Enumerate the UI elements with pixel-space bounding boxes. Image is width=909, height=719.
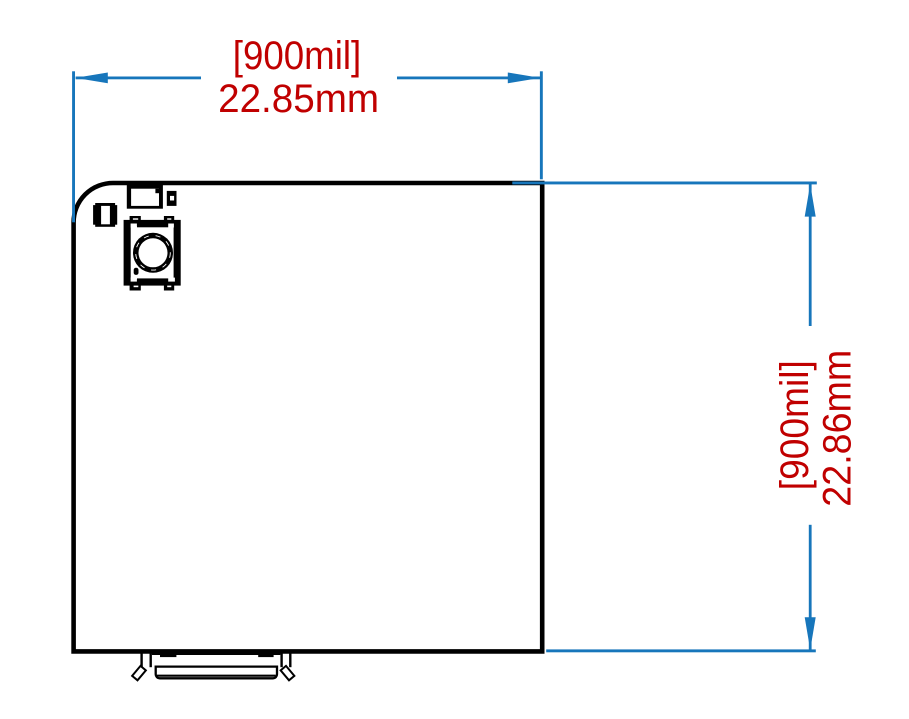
svg-text:[900mil]: [900mil] <box>233 34 362 78</box>
svg-text:22.85mm: 22.85mm <box>218 77 379 121</box>
svg-text:[900mil]: [900mil] <box>773 360 817 490</box>
svg-text:22.86mm: 22.86mm <box>816 350 860 507</box>
